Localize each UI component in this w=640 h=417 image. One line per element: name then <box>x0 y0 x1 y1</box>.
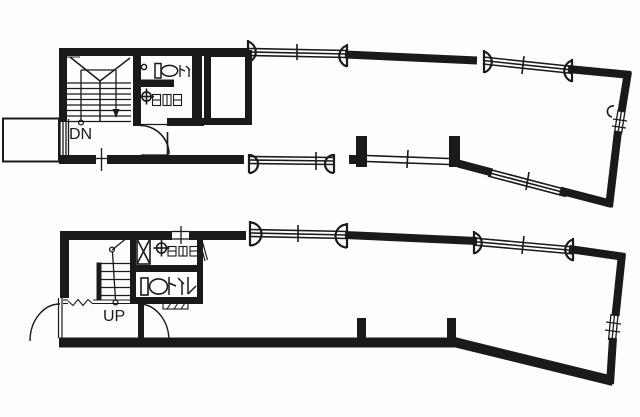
svg-text:UP: UP <box>103 308 125 325</box>
svg-text:DN: DN <box>69 126 92 143</box>
